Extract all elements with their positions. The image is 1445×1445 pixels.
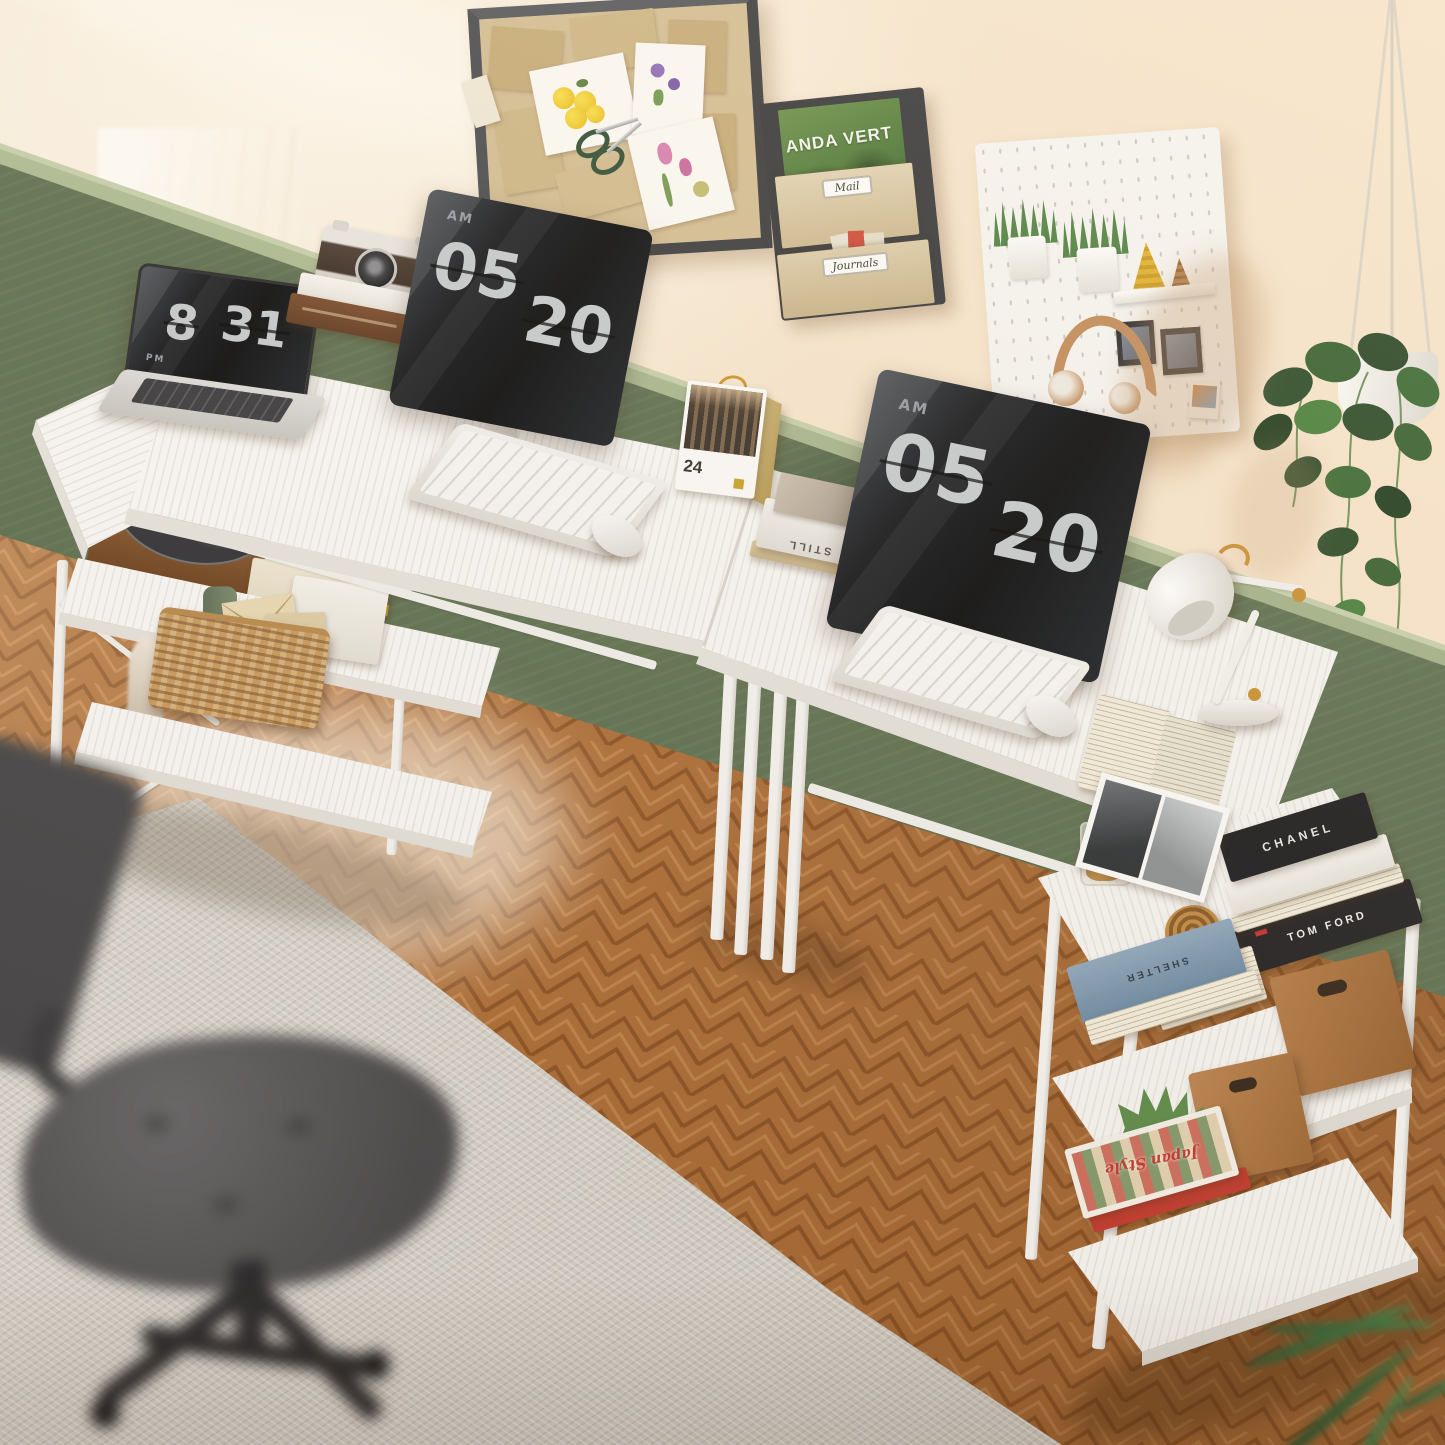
box-handle <box>1316 978 1348 998</box>
clock-meridiem: AM <box>446 208 475 228</box>
flower <box>678 157 694 177</box>
calendar-day: 24 <box>682 456 703 478</box>
pocket-label: Journals <box>822 252 890 278</box>
stem <box>653 89 664 105</box>
spine-gilt <box>302 307 397 328</box>
clock-meridiem: AM <box>897 395 931 419</box>
magazine-rack: ANDA VERT Mail Journals <box>759 87 946 321</box>
clock-hours: 05 <box>427 233 527 313</box>
flower <box>655 141 674 166</box>
chair-caster <box>360 1350 390 1380</box>
stem <box>660 173 674 207</box>
laptop-clock-hours: 8 <box>162 297 202 349</box>
bookmark <box>1255 928 1268 936</box>
laptop-clock-meridiem: PM <box>145 353 166 366</box>
box-handle <box>1228 1076 1258 1094</box>
lemon <box>585 103 606 124</box>
clock-hours: 05 <box>875 421 997 520</box>
brass-joint <box>1292 588 1306 602</box>
calendar-front: 24 <box>675 380 768 499</box>
thistle <box>691 179 710 198</box>
pegboard-planter <box>1076 246 1119 293</box>
monitor-screen: AM 05 20 <box>388 188 654 447</box>
pegboard-planter <box>1007 235 1048 280</box>
lamp-base <box>1198 700 1278 726</box>
foreground-plant-leaves <box>1225 1250 1445 1445</box>
camera-dial <box>332 219 350 232</box>
clock-minutes: 20 <box>519 287 619 367</box>
pocket-label: Mail <box>821 175 873 199</box>
calendar-logo <box>733 478 744 489</box>
home-office-photo: ANDA VERT Mail Journals <box>0 0 1445 1445</box>
chair-caster <box>90 1398 120 1428</box>
leaf-blade <box>1264 1310 1435 1344</box>
flower <box>668 78 681 91</box>
calendar-photo <box>684 384 763 456</box>
flower <box>650 63 665 78</box>
magazine-title: ANDA VERT <box>784 121 904 157</box>
brass-joint <box>1248 688 1261 701</box>
clock-minutes: 20 <box>985 490 1107 589</box>
lemon-leaf <box>576 78 589 88</box>
cone-tree-ornament <box>1130 241 1165 289</box>
laptop-clock-minutes: 31 <box>218 299 291 356</box>
office-chair <box>0 750 610 1445</box>
magazine-spine-title: STILL <box>786 538 833 558</box>
